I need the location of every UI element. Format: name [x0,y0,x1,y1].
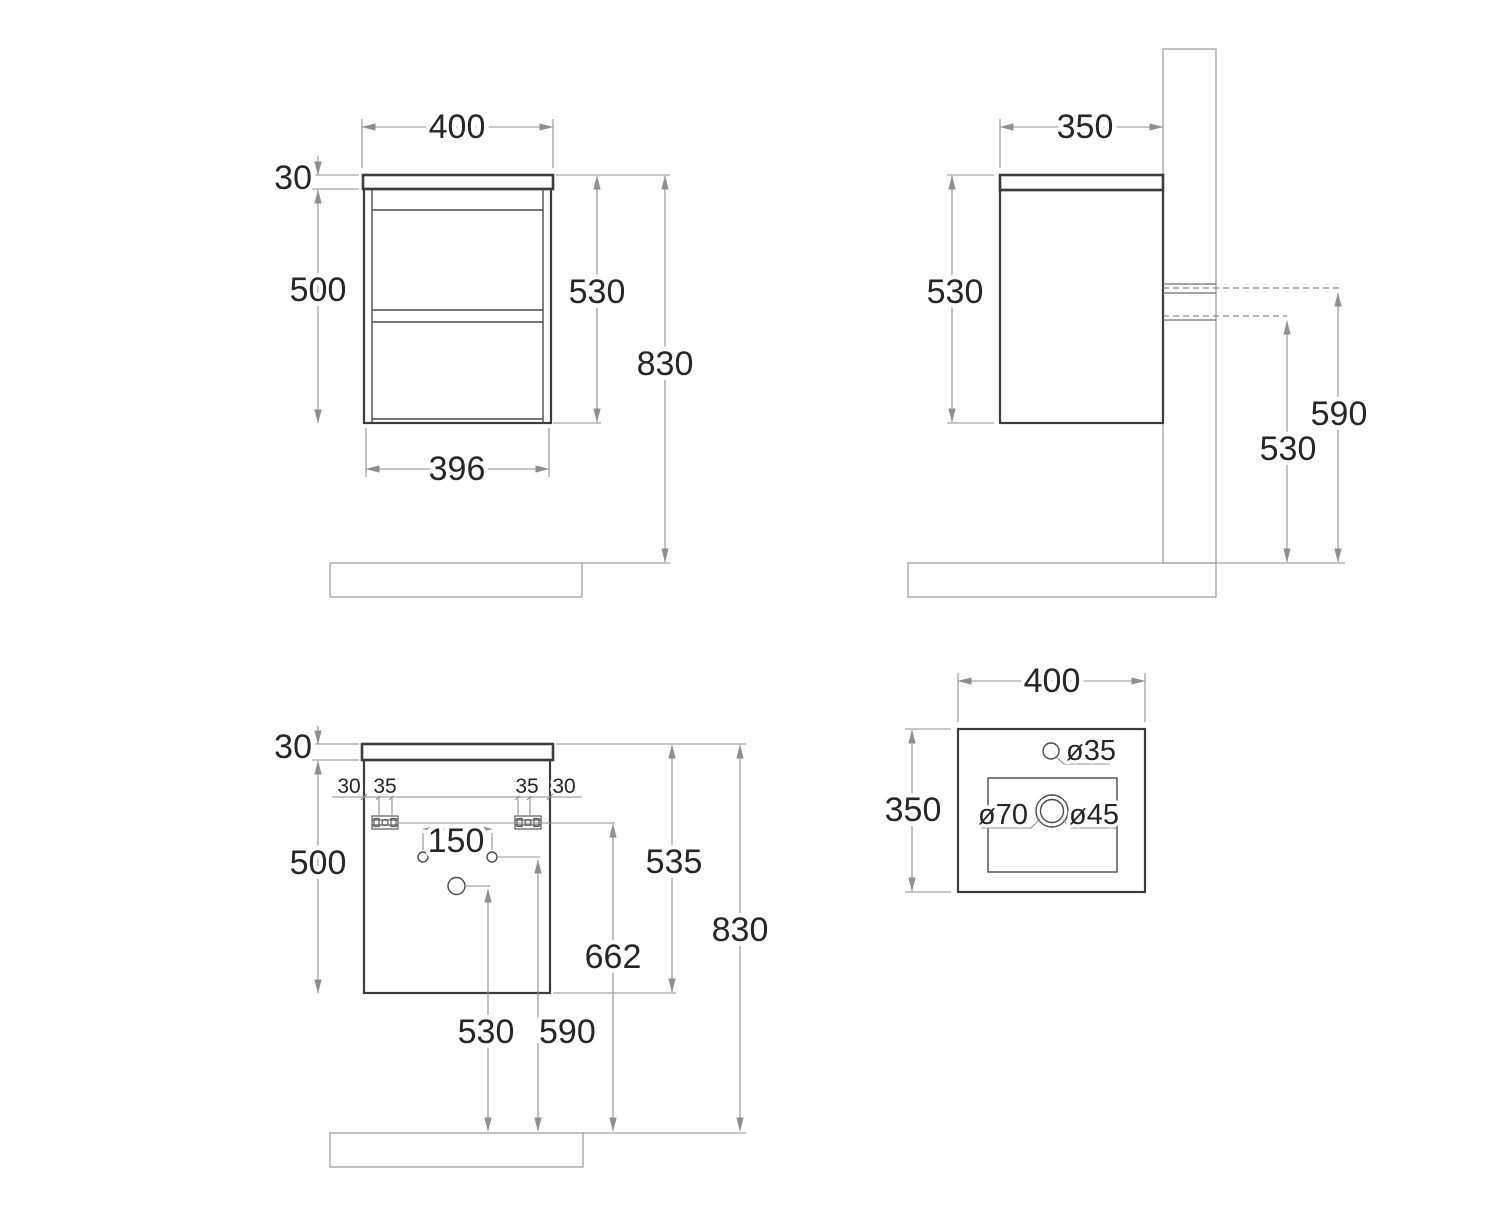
wall-hatch [1163,49,1216,563]
front-cabinet [363,175,553,423]
fixing-hole-left [418,852,428,862]
mounting-rails [1163,284,1340,320]
dim-label-right-bracket: 35 [515,775,538,798]
dim-label-back-top: 30 [274,728,312,766]
countertop-back [362,744,553,760]
dim-label-back-total: 830 [712,911,769,949]
sink-top-view: 400 350 ø35 ø70 ø45 [885,662,1145,892]
dim-label-lower-rail: 530 [1260,430,1317,468]
faucet-hole [1043,743,1059,759]
floor-hatch [330,563,582,597]
dim-label-drain-floor: 530 [458,1013,515,1051]
technical-drawing: 400 30 500 530 830 396 [0,0,1500,1218]
dim-label-front-cabinet: 530 [569,273,626,311]
dim-label-front-bottom: 396 [429,450,486,488]
dim-label-front-width: 400 [429,108,486,146]
dim-label-faucet-hole: ø35 [1066,735,1116,767]
countertop [363,175,553,189]
back-view: 30 500 30 35 35 30 150 530 590 [274,726,768,1167]
drain-circle [1041,800,1064,823]
dim-label-front-top: 30 [274,159,312,197]
dim-label-side-height: 530 [927,273,984,311]
drain-hole [448,878,465,895]
floor-hatch [908,563,1216,597]
dim-label-overflow: ø70 [978,799,1028,831]
dim-label-rail-floor: 662 [585,938,642,976]
back-dimensions: 30 500 30 35 35 30 150 530 590 [274,726,768,1131]
dim-label-sink-width: 400 [1024,662,1081,700]
dim-label-front-total: 830 [637,345,694,383]
wall-brackets [372,816,615,829]
dim-label-hole-spacing: 150 [428,822,485,860]
dim-label-holes-floor: 590 [539,1013,596,1051]
cabinet-body [364,189,551,423]
dim-label-side-depth: 350 [1057,108,1114,146]
countertop-side [1000,175,1163,190]
side-view: 350 530 590 530 [908,49,1367,597]
dim-label-back-body: 500 [290,844,347,882]
dim-label-sink-depth: 350 [885,791,942,829]
cabinet-body-side [1000,190,1163,423]
dim-label-back-cabinet: 535 [646,843,703,881]
side-cabinet [1000,175,1163,423]
fixing-hole-right [487,852,497,862]
sink-dimensions: 400 350 ø35 ø70 ø45 [885,662,1145,892]
dim-label-front-body: 500 [290,271,347,309]
dim-label-right-offset: 30 [552,775,575,798]
dim-label-left-bracket: 35 [373,775,396,798]
dim-label-drain: ø45 [1069,799,1119,831]
floor-hatch [330,1133,583,1167]
dim-label-upper-rail: 590 [1311,395,1368,433]
front-view: 400 30 500 530 830 396 [274,108,693,597]
dim-label-left-offset: 30 [337,775,360,798]
drawing-canvas: 400 30 500 530 830 396 [0,0,1500,1218]
